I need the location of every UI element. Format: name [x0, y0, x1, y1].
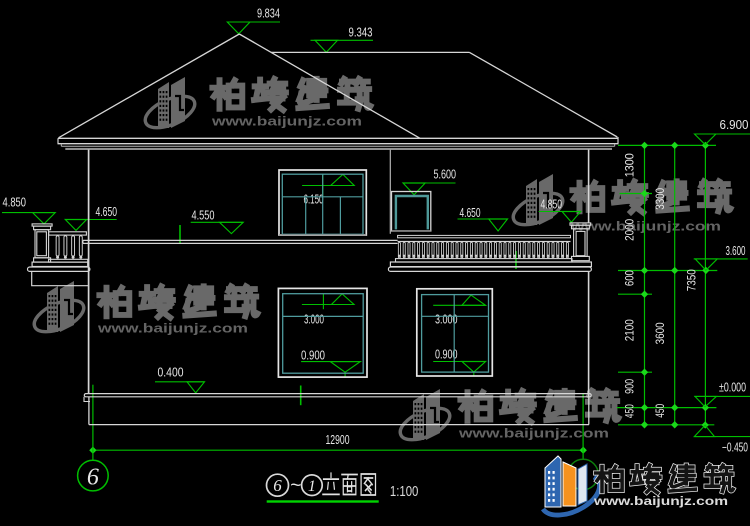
svg-text:4.850: 4.850 [3, 195, 27, 209]
svg-text:2000: 2000 [623, 219, 637, 241]
svg-text:www.baijunjz.com: www.baijunjz.com [593, 494, 728, 508]
svg-text:±0.000: ±0.000 [719, 380, 746, 394]
svg-text:www.baijunjz.com: www.baijunjz.com [570, 219, 721, 234]
svg-text:www.baijunjz.com: www.baijunjz.com [458, 426, 609, 441]
svg-text:4.650: 4.650 [96, 205, 118, 219]
svg-text:7350: 7350 [684, 269, 698, 291]
svg-text:4.850: 4.850 [541, 198, 563, 212]
svg-text:4.650: 4.650 [460, 206, 481, 220]
svg-text:3.600: 3.600 [726, 244, 746, 258]
svg-text:2100: 2100 [623, 319, 637, 341]
svg-text:12900: 12900 [326, 433, 350, 447]
svg-text:4.550: 4.550 [192, 209, 215, 223]
svg-text:9.343: 9.343 [349, 25, 373, 39]
svg-text:6: 6 [273, 476, 282, 495]
svg-text:−0.450: −0.450 [722, 440, 748, 454]
svg-text:0.400: 0.400 [158, 366, 184, 380]
svg-text:6.150: 6.150 [304, 193, 324, 207]
svg-text:6: 6 [87, 465, 99, 491]
svg-text:6.900: 6.900 [720, 118, 749, 132]
svg-text:3600: 3600 [653, 322, 667, 344]
svg-text:5.600: 5.600 [434, 168, 457, 182]
svg-text:1: 1 [308, 478, 316, 495]
svg-text:~: ~ [290, 476, 301, 497]
svg-text:9.834: 9.834 [257, 7, 280, 21]
svg-text:450: 450 [653, 404, 667, 418]
svg-text:900: 900 [623, 379, 637, 394]
svg-text:1:100: 1:100 [390, 483, 419, 500]
svg-text:www.baijunjz.com: www.baijunjz.com [211, 114, 362, 129]
svg-text:450: 450 [623, 404, 637, 418]
svg-text:3300: 3300 [653, 188, 667, 210]
svg-text:600: 600 [623, 270, 637, 286]
svg-text:3.000: 3.000 [304, 312, 324, 326]
svg-text:www.baijunjz.com: www.baijunjz.com [97, 321, 248, 336]
svg-text:1300: 1300 [623, 153, 637, 177]
svg-text:0.900: 0.900 [301, 349, 325, 363]
